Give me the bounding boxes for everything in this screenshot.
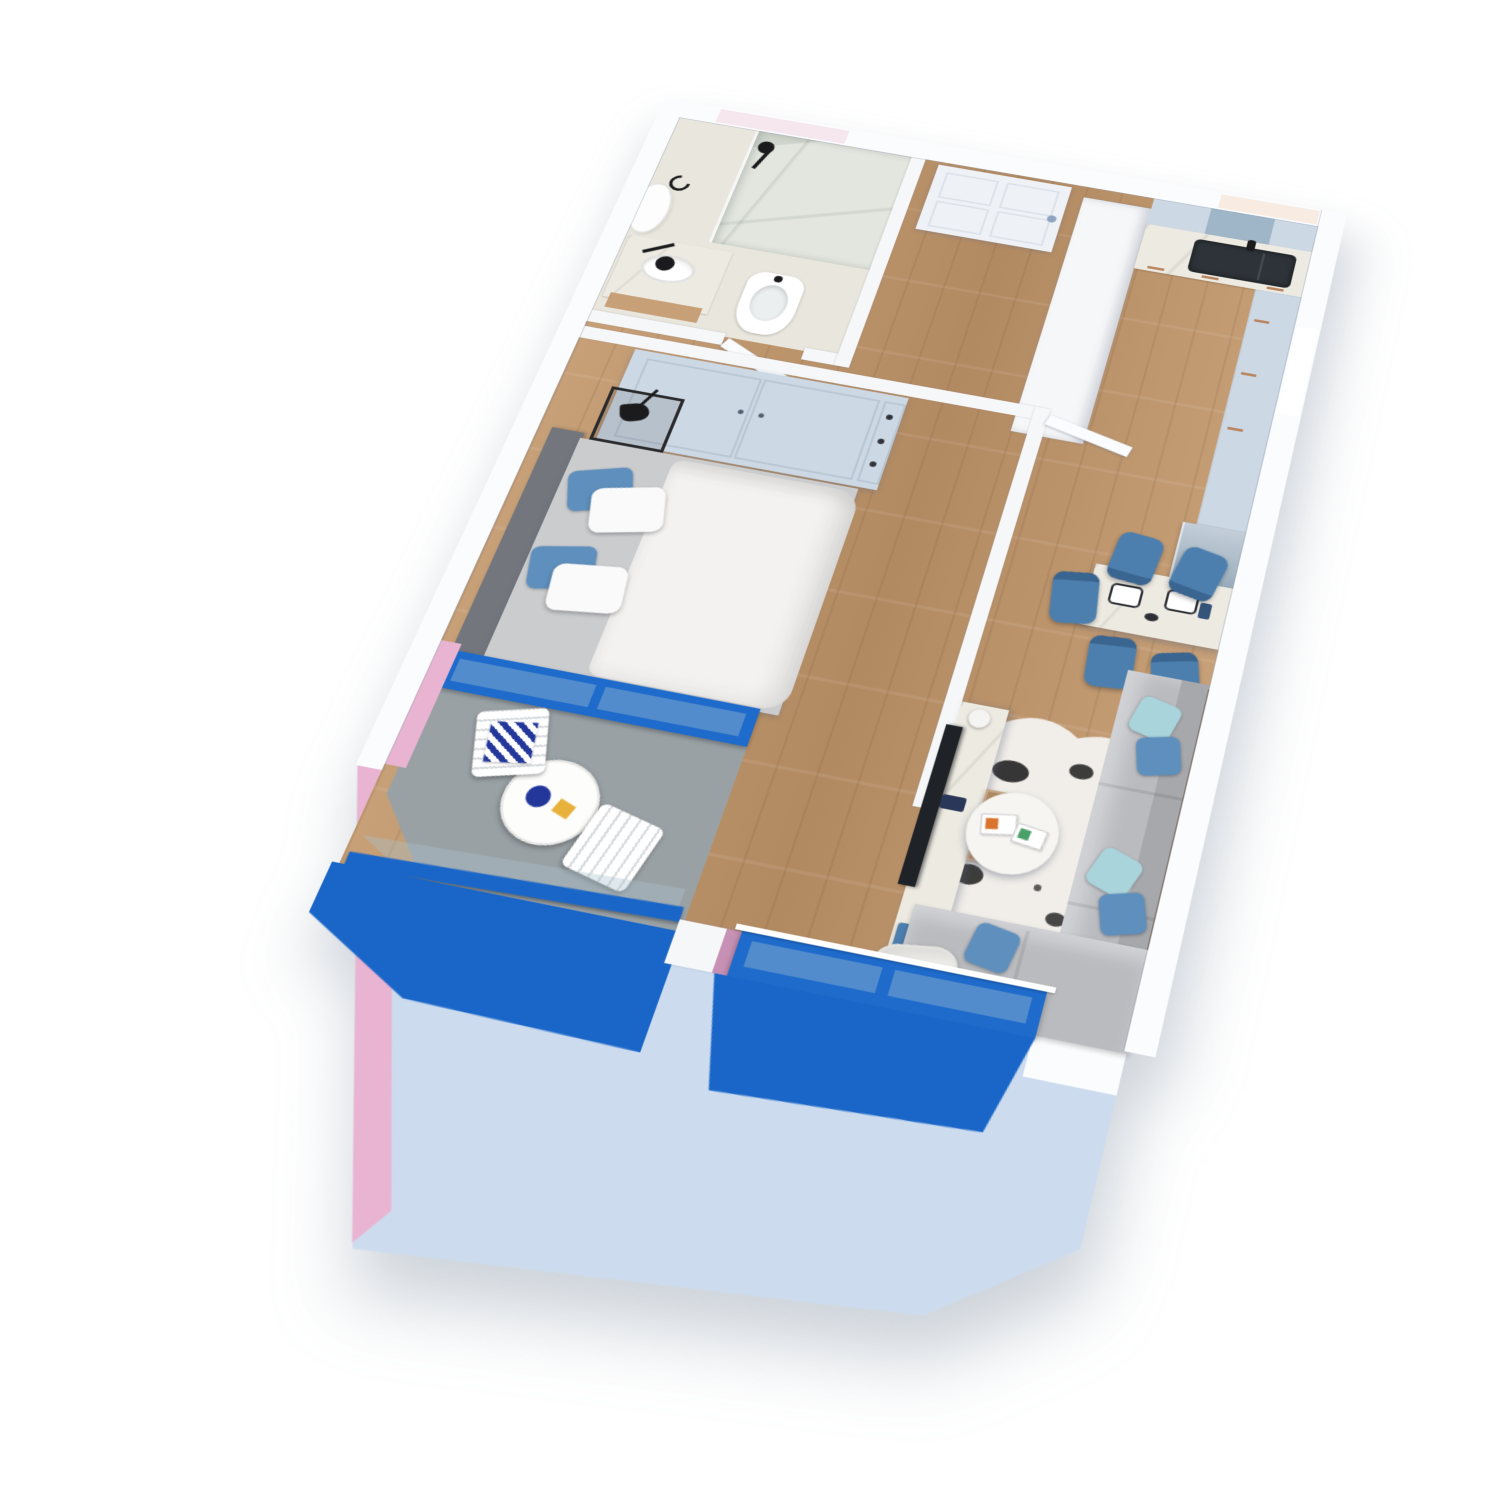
- front-door-panel: [989, 211, 1051, 246]
- breakfast-plate: [522, 783, 555, 809]
- blue-pillow: [1098, 892, 1147, 936]
- toast: [551, 798, 576, 819]
- magazine-photo: [1017, 828, 1032, 841]
- white-pillow: [587, 487, 667, 533]
- bidet-bowl: [744, 282, 794, 323]
- apartment-3d-plan: [145, 98, 1347, 1419]
- zigzag-cushion: [483, 721, 539, 763]
- dining-chair: [1048, 570, 1100, 624]
- blue-pillow: [1136, 737, 1182, 776]
- menu-card: [1197, 603, 1212, 620]
- place-setting: [1107, 582, 1145, 609]
- render-canvas: [0, 0, 1500, 1500]
- folding-chair: [471, 708, 550, 777]
- front-door-panel: [927, 200, 989, 235]
- dining-decor: [1143, 612, 1159, 622]
- magazine: [1010, 822, 1049, 851]
- bidet-tap: [773, 275, 784, 283]
- white-pillow: [543, 563, 630, 615]
- sink-divider: [1257, 253, 1266, 280]
- magazine-photo: [985, 818, 998, 829]
- magazine: [980, 813, 1018, 835]
